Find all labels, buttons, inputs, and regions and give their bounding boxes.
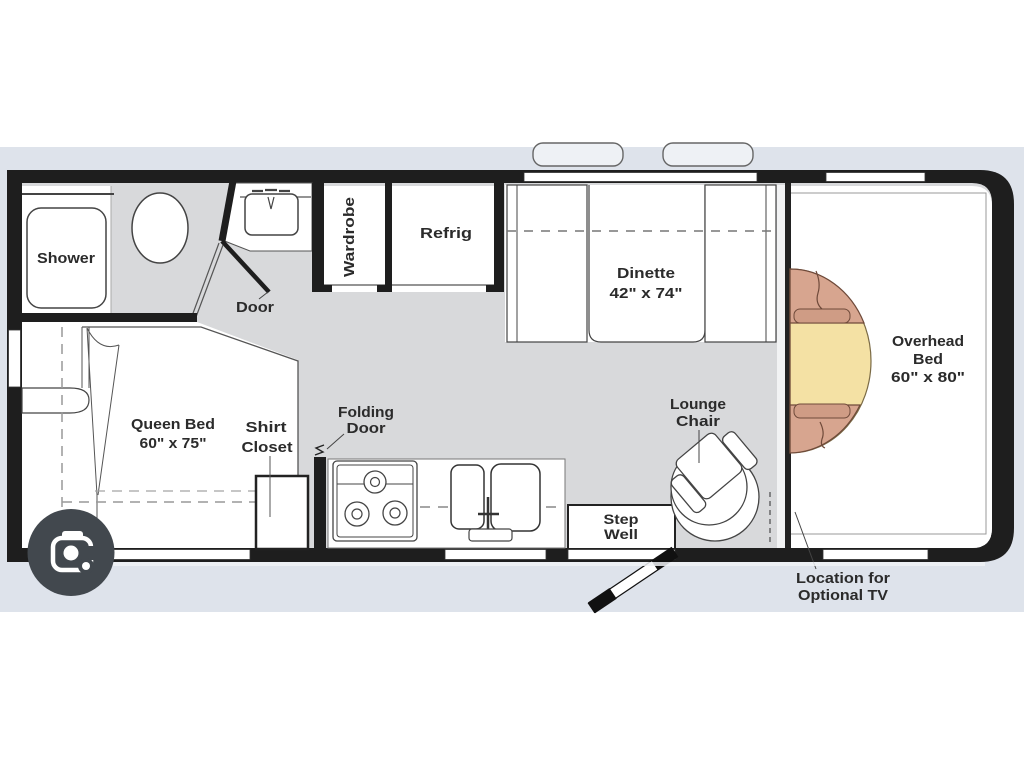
svg-text:Shirt: Shirt xyxy=(246,419,287,436)
svg-text:Door: Door xyxy=(236,299,274,316)
svg-text:Well: Well xyxy=(604,526,638,542)
svg-text:Queen Bed: Queen Bed xyxy=(131,416,215,433)
svg-text:Step: Step xyxy=(604,511,639,527)
svg-text:Folding: Folding xyxy=(338,404,394,421)
svg-text:Closet: Closet xyxy=(242,439,293,456)
svg-text:Chair: Chair xyxy=(676,413,720,430)
svg-text:Wardrobe: Wardrobe xyxy=(341,197,358,277)
svg-text:Shower: Shower xyxy=(37,250,95,267)
svg-text:60" x 80": 60" x 80" xyxy=(891,369,965,386)
svg-text:Overhead: Overhead xyxy=(892,333,964,350)
svg-text:Optional TV: Optional TV xyxy=(798,587,888,604)
svg-text:Door: Door xyxy=(347,420,386,437)
svg-text:Lounge: Lounge xyxy=(670,396,726,413)
svg-text:60" x 75": 60" x 75" xyxy=(140,435,207,452)
svg-text:Refrig: Refrig xyxy=(420,225,472,242)
svg-text:Location for: Location for xyxy=(796,570,890,587)
svg-text:42" x 74": 42" x 74" xyxy=(610,285,683,302)
svg-text:Dinette: Dinette xyxy=(617,265,675,282)
svg-text:Bed: Bed xyxy=(913,351,943,368)
